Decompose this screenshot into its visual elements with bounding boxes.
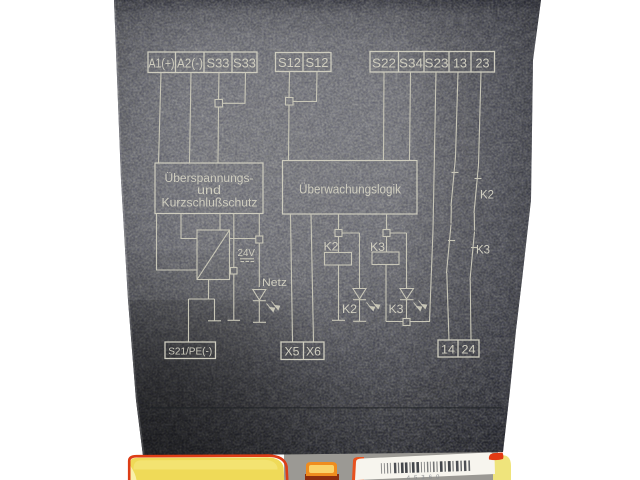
svg-text:S12: S12 — [306, 56, 329, 70]
svg-text:K3: K3 — [389, 304, 404, 316]
svg-text:X5: X5 — [285, 345, 300, 359]
svg-text:A1(+): A1(+) — [149, 57, 175, 71]
svg-text:X6: X6 — [306, 345, 321, 359]
svg-text:Kurzschlußschutz: Kurzschlußschutz — [162, 198, 258, 210]
svg-text:K3: K3 — [476, 245, 490, 257]
svg-text:S21/PE(-): S21/PE(-) — [168, 346, 212, 358]
svg-text:S22: S22 — [372, 57, 396, 71]
svg-text:13: 13 — [453, 57, 467, 71]
svg-text:24: 24 — [462, 343, 476, 357]
svg-text:Überspannungs-: Überspannungs- — [165, 173, 254, 185]
svg-text:Netz: Netz — [262, 277, 287, 289]
svg-text:S33: S33 — [233, 57, 256, 71]
svg-text:S33: S33 — [207, 57, 230, 71]
svg-text:S12: S12 — [278, 56, 301, 70]
svg-text:S23: S23 — [425, 57, 449, 71]
svg-text:K3: K3 — [370, 242, 385, 254]
svg-text:14: 14 — [441, 343, 455, 357]
svg-text:K2: K2 — [324, 242, 339, 254]
svg-text:23: 23 — [476, 57, 490, 71]
svg-text:K2: K2 — [480, 190, 494, 202]
svg-text:45360: 45360 — [407, 474, 444, 480]
svg-text:K2: K2 — [342, 304, 357, 316]
svg-text:und: und — [197, 185, 221, 197]
svg-text:24V: 24V — [238, 247, 256, 259]
svg-text:A2(-): A2(-) — [177, 57, 203, 71]
svg-text:S34: S34 — [399, 57, 423, 71]
svg-text:Überwachungslogik: Überwachungslogik — [299, 183, 402, 197]
